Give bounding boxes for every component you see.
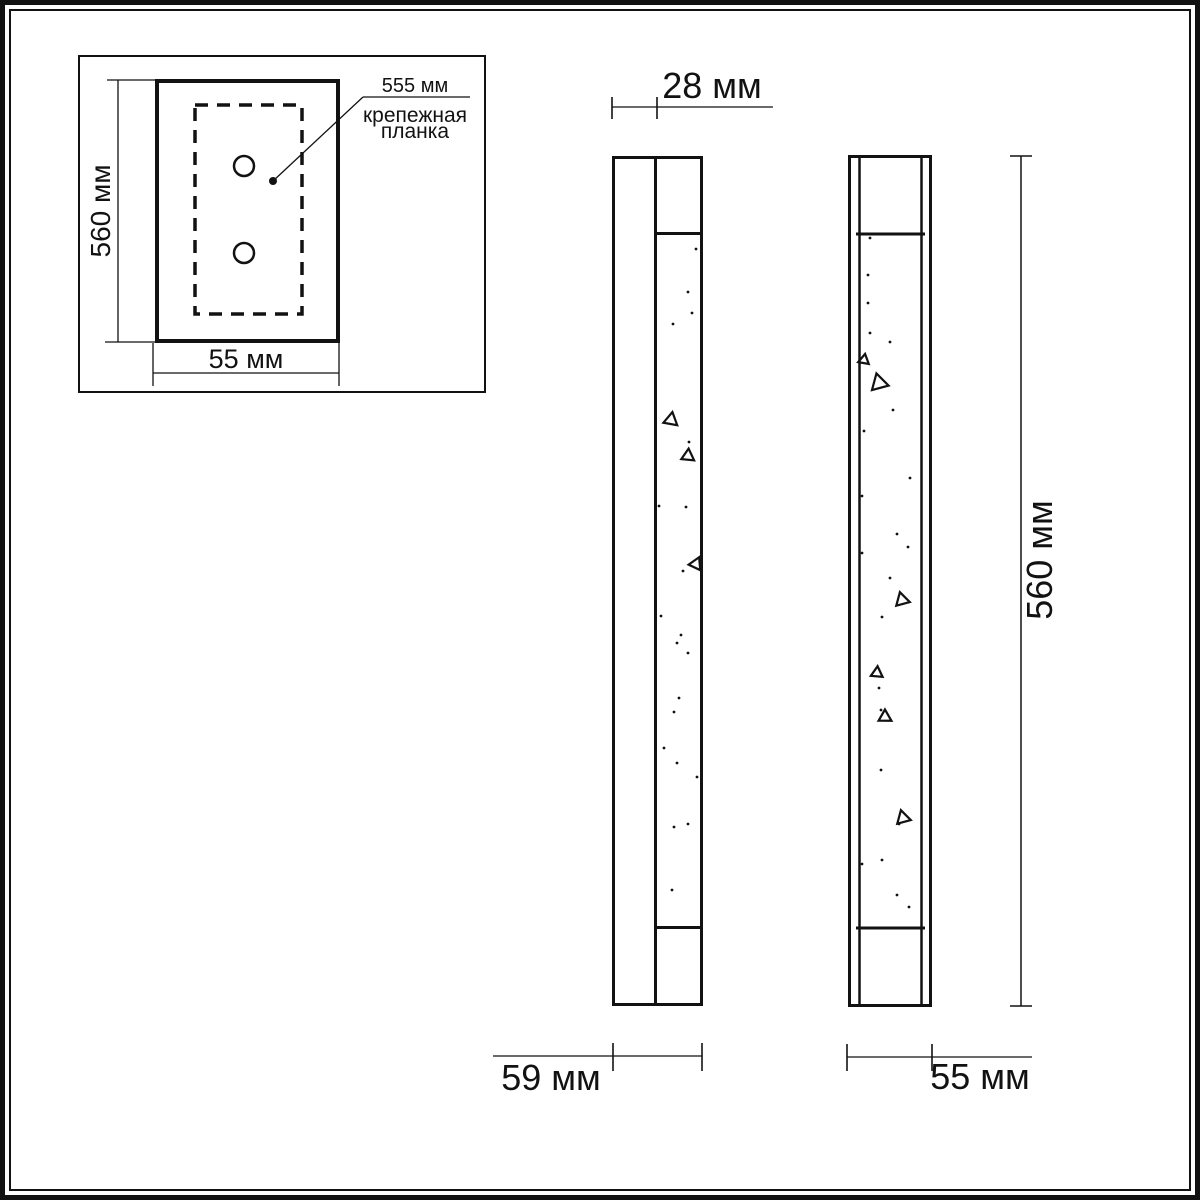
mounting-plate-dashed-outline — [195, 105, 302, 314]
sparkle-triangle — [875, 710, 891, 727]
sparkle-dot — [881, 859, 884, 862]
sparkle-triangle — [894, 808, 911, 823]
sparkle-dot — [889, 341, 892, 344]
front-height-label: 560 мм — [1019, 500, 1060, 620]
sparkle-dot — [861, 863, 864, 866]
sparkle-dot — [658, 505, 661, 508]
inset-width-label: 55 мм — [209, 344, 284, 374]
sparkle-dot — [896, 894, 899, 897]
sparkle-dot — [861, 552, 864, 555]
front-height-dimension: 560 мм — [1010, 156, 1060, 1006]
side-view-sparkles — [658, 248, 701, 892]
sparkle-dot — [909, 477, 912, 480]
sparkle-dot — [676, 762, 679, 765]
side-view: 28 мм 59 мм — [493, 65, 773, 1098]
sparkle-dot — [878, 687, 881, 690]
front-width-label: 55 мм — [930, 1056, 1030, 1097]
mounting-hole-top — [234, 156, 254, 176]
callout-label-line2: планка — [381, 120, 450, 143]
sparkle-triangle — [871, 666, 884, 677]
sparkle-dot — [867, 274, 870, 277]
sparkle-dot — [863, 430, 866, 433]
sparkle-triangle — [663, 411, 679, 425]
sparkle-dot — [687, 652, 690, 655]
sparkle-triangle — [893, 590, 910, 605]
sparkle-dot — [867, 302, 870, 305]
sparkle-dot — [660, 615, 663, 618]
sparkle-dot — [889, 577, 892, 580]
front-view-outline — [850, 157, 931, 1006]
sparkle-dot — [880, 769, 883, 772]
sparkle-dot — [880, 709, 883, 712]
side-depth-label: 28 мм — [662, 65, 762, 106]
side-total-depth-dimension: 59 мм — [493, 1043, 702, 1098]
front-view-sparkles — [856, 237, 911, 909]
sparkle-dot — [671, 889, 674, 892]
inset-width-dimension: 55 мм — [153, 343, 339, 386]
front-view: 560 мм 55 мм — [847, 156, 1060, 1097]
inset-height-dimension: 560 мм — [85, 80, 157, 342]
dimension-drawing: 555 мм крепежная планка 560 мм 55 мм 28 … — [0, 0, 1200, 1200]
side-view-outline — [614, 158, 702, 1005]
sparkle-triangle — [688, 557, 700, 571]
sparkle-dot — [881, 616, 884, 619]
sparkle-dot — [663, 747, 666, 750]
front-width-dimension: 55 мм — [847, 1044, 1032, 1097]
inset-height-label: 560 мм — [85, 165, 116, 258]
sparkle-dot — [892, 409, 895, 412]
sparkle-dot — [688, 441, 691, 444]
sparkle-dot — [687, 291, 690, 294]
sparkle-dot — [673, 711, 676, 714]
sparkle-dot — [672, 323, 675, 326]
sparkle-dot — [869, 332, 872, 335]
sparkle-dot — [678, 697, 681, 700]
mounting-plate-callout: 555 мм крепежная планка — [269, 75, 470, 185]
mounting-hole-bottom — [234, 243, 254, 263]
sparkle-dot — [908, 906, 911, 909]
sparkle-dot — [896, 533, 899, 536]
sparkle-dot — [687, 823, 690, 826]
sparkle-triangle — [856, 354, 868, 367]
sparkle-dot — [696, 776, 699, 779]
sparkle-triangle — [868, 371, 888, 390]
sparkle-dot — [869, 237, 872, 240]
sparkle-dot — [673, 826, 676, 829]
sparkle-triangle — [679, 449, 695, 465]
callout-leader-line — [273, 97, 363, 181]
inner-border — [10, 10, 1190, 1190]
sparkle-dot — [676, 642, 679, 645]
side-total-depth-label: 59 мм — [501, 1057, 601, 1098]
sparkle-dot — [685, 506, 688, 509]
sparkle-dot — [861, 495, 864, 498]
side-depth-dimension: 28 мм — [612, 65, 773, 119]
sparkle-dot — [680, 634, 683, 637]
sparkle-dot — [907, 546, 910, 549]
mounting-detail-inset: 555 мм крепежная планка 560 мм 55 мм — [79, 56, 485, 392]
sparkle-dot — [695, 248, 698, 251]
sparkle-dot — [682, 570, 685, 573]
side-view-body — [614, 157, 702, 1005]
backplate-outline — [157, 81, 338, 341]
sparkle-dot — [691, 312, 694, 315]
callout-value: 555 мм — [382, 75, 448, 97]
front-view-body — [850, 157, 931, 1006]
